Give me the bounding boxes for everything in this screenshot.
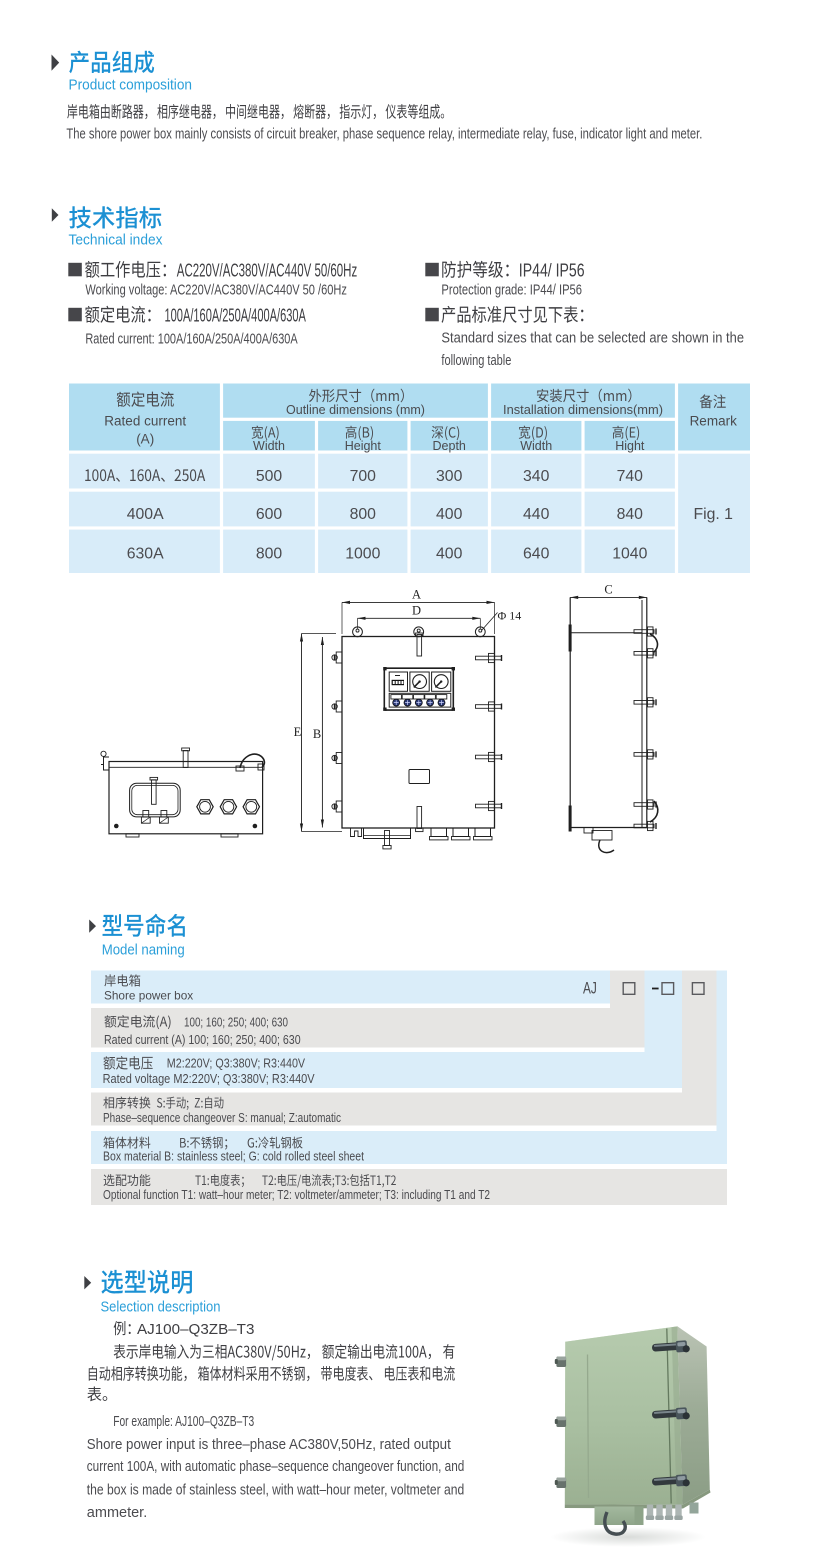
svg-text:Model naming: Model naming — [102, 942, 185, 959]
svg-text:600: 600 — [256, 506, 283, 523]
svg-text:Remark: Remark — [690, 414, 738, 429]
svg-text:Rated current: 100A/160A/250A/: Rated current: 100A/160A/250A/400A/630A — [85, 332, 297, 348]
svg-text:Technical index: Technical index — [69, 232, 163, 249]
svg-text:Hight: Hight — [615, 439, 645, 453]
svg-text:Selection description: Selection description — [101, 1299, 221, 1316]
svg-text:D: D — [412, 604, 421, 618]
svg-text:(A): (A) — [136, 432, 154, 447]
svg-text:Shore power input is three: Shore power input is three–phase AC380V,… — [87, 1437, 451, 1453]
svg-text:Fig. 1: Fig. 1 — [693, 506, 733, 523]
svg-text:following table: following table — [441, 353, 511, 369]
svg-text:the box is made of stainless s: the box is made of stainless steel, with… — [87, 1483, 465, 1499]
svg-text:400A: 400A — [127, 506, 164, 523]
svg-text:Phase–sequence changeover S:: Phase–sequence changeover S: manual; Z:a… — [103, 1111, 341, 1125]
svg-text:800: 800 — [256, 546, 283, 563]
svg-text:Rated current: Rated current — [104, 414, 186, 429]
svg-text:300: 300 — [436, 468, 463, 485]
svg-text:340: 340 — [523, 468, 550, 485]
svg-text:640: 640 — [523, 546, 550, 563]
svg-text:Standard sizes that can be: Standard sizes that can be selected are … — [441, 331, 744, 347]
svg-text:Rated voltage M2:220V; Q3:38: Rated voltage M2:220V; Q3:380V; R3:440V — [103, 1072, 316, 1086]
svg-text:AC220V/AC380V/AC440V 50/60Hz: AC220V/AC380V/AC440V 50/60Hz — [177, 260, 357, 280]
svg-text:Φ 14: Φ 14 — [498, 609, 522, 623]
svg-text:C: C — [604, 583, 612, 597]
svg-text:800: 800 — [350, 506, 377, 523]
svg-text:Shore power box: Shore power box — [104, 989, 193, 1003]
svg-text:740: 740 — [617, 468, 644, 485]
svg-text:M2:220V; Q3:380V; R3:440V: M2:220V; Q3:380V; R3:440V — [167, 1057, 306, 1071]
svg-text:1000: 1000 — [345, 546, 380, 563]
svg-text:Protection grade: IP44/ IP56: Protection grade: IP44/ IP56 — [441, 282, 582, 298]
svg-text:100; 160; 250; 400; 630: 100; 160; 250; 400; 630 — [184, 1016, 288, 1030]
svg-text:840: 840 — [617, 506, 644, 523]
svg-text:ammeter.: ammeter. — [87, 1505, 147, 1521]
svg-text:Optional function T1: watt–ho: Optional function T1: watt–hour meter; T… — [103, 1188, 490, 1202]
svg-text:Outline dimensions (mm): Outline dimensions (mm) — [286, 403, 425, 417]
svg-text:current 100A, with automatic p: current 100A, with automatic phase–seque… — [87, 1459, 465, 1475]
svg-text:For example: AJ100–Q3ZB–T3: For example: AJ100–Q3ZB–T3 — [113, 1414, 254, 1430]
svg-text:A: A — [412, 588, 421, 602]
svg-text:AJ: AJ — [583, 979, 597, 998]
svg-text:The shore power box mainly con: The shore power box mainly consists of c… — [66, 127, 702, 143]
svg-text:Depth: Depth — [433, 439, 466, 453]
svg-text:700: 700 — [350, 468, 377, 485]
svg-text:Width: Width — [253, 439, 285, 453]
svg-text:400: 400 — [436, 506, 463, 523]
svg-text:Box material B: stainless ste: Box material B: stainless steel; G: cold… — [103, 1150, 364, 1164]
svg-text:500: 500 — [256, 468, 283, 485]
svg-text:B: B — [313, 727, 321, 741]
svg-text:Width: Width — [520, 439, 552, 453]
svg-text:630A: 630A — [127, 546, 164, 563]
svg-text:AJ100–Q3ZB–T3: AJ100–Q3ZB–T3 — [137, 1321, 254, 1338]
svg-text:Product composition: Product composition — [69, 77, 193, 94]
svg-text:1040: 1040 — [612, 546, 647, 563]
svg-text:Rated current (A) 100; 160; 25: Rated current (A) 100; 160; 250; 400; 63… — [104, 1033, 301, 1047]
svg-text:IP44/ IP56: IP44/ IP56 — [519, 260, 585, 280]
svg-text:E: E — [294, 725, 302, 739]
svg-text:400: 400 — [436, 546, 463, 563]
svg-text:Height: Height — [345, 439, 382, 453]
svg-text:100A/160A/250A/400A/630A: 100A/160A/250A/400A/630A — [165, 305, 306, 325]
svg-text:Installation dimensions(mm): Installation dimensions(mm) — [503, 403, 663, 417]
svg-text:Working voltage: AC220V/AC380V: Working voltage: AC220V/AC380V/AC440V 50… — [85, 282, 347, 298]
svg-text:440: 440 — [523, 506, 550, 523]
